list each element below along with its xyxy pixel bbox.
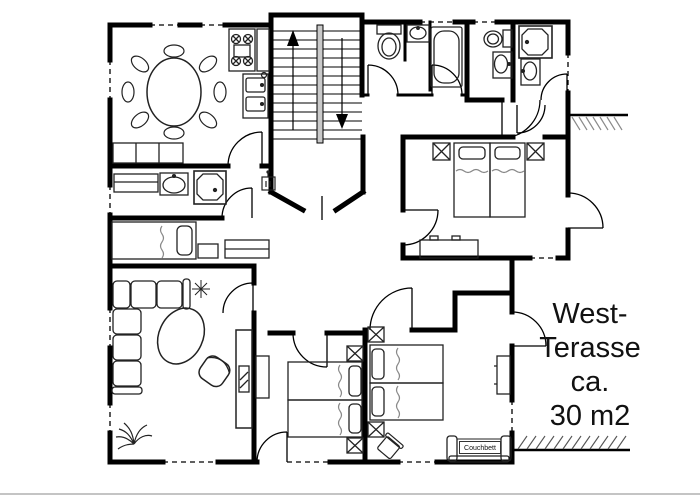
toilet-icon xyxy=(484,30,512,47)
coffee-table-icon xyxy=(149,300,213,371)
right-bedroom xyxy=(420,143,544,258)
nightstand-icon xyxy=(433,143,450,160)
left-bathroom xyxy=(114,171,226,204)
sideboard-icon xyxy=(113,143,183,163)
bottom-middle-bedroom xyxy=(288,346,363,453)
living-room xyxy=(112,279,269,449)
dining-chairs xyxy=(122,45,226,139)
couch-bed-label: Couchbett xyxy=(459,441,501,454)
shower-icon xyxy=(519,26,552,58)
nightstand-icon xyxy=(368,422,384,437)
bed-icon xyxy=(370,345,443,383)
master-bathroom xyxy=(484,26,552,85)
door-swing xyxy=(541,74,567,100)
terrace-label-line3: ca. xyxy=(510,365,670,399)
wc-room xyxy=(377,25,429,59)
kitchen-cabinet xyxy=(257,29,269,71)
window-markers xyxy=(110,22,568,462)
bed-icon xyxy=(112,222,196,259)
bed-icon xyxy=(288,362,362,400)
bed-icon xyxy=(370,383,443,420)
terrace-hatch-top xyxy=(568,115,628,130)
exterior-walls xyxy=(110,22,568,462)
door-swing xyxy=(223,283,253,313)
stove-icon xyxy=(229,29,255,71)
stairs-down-arrow xyxy=(336,38,348,129)
kitchen xyxy=(229,29,269,118)
stair-core xyxy=(317,25,323,143)
bed-icon xyxy=(288,400,362,437)
door-swing xyxy=(568,193,603,228)
left-bedroom xyxy=(112,222,269,259)
dresser-icon xyxy=(420,236,478,258)
fireplace-unit xyxy=(236,330,252,428)
door-swing xyxy=(517,105,545,133)
bathroom-partitions xyxy=(467,22,513,100)
shower-icon xyxy=(194,171,226,204)
dining-room xyxy=(113,45,226,163)
interior-walls xyxy=(110,15,568,462)
nightstand-icon xyxy=(347,346,363,361)
cabinet xyxy=(256,356,269,398)
wc-partitions xyxy=(363,22,467,95)
stairs-up-arrow xyxy=(287,30,299,130)
nightstand-icon xyxy=(527,143,544,160)
sofa-icon xyxy=(112,279,190,394)
nightstand-icon xyxy=(368,327,384,342)
bed-icon xyxy=(454,143,490,217)
terrace-hatch-bottom xyxy=(513,436,630,450)
washbasin-icon xyxy=(160,173,188,195)
washbasin-icon xyxy=(521,59,540,85)
door-swing xyxy=(370,288,412,330)
hall-funnel-walls xyxy=(271,192,363,210)
desk xyxy=(225,240,269,258)
washbasin-icon xyxy=(407,25,429,42)
nightstand-icon xyxy=(347,438,363,453)
bath-counter xyxy=(114,174,158,192)
wall-sideboard-icon xyxy=(494,356,510,394)
bathtub-room xyxy=(431,27,462,87)
nightstand-icon xyxy=(198,244,218,258)
terrace-label: West- Terasse ca. 30 m2 xyxy=(510,297,670,433)
washbasin-icon xyxy=(493,52,512,78)
door-swing xyxy=(368,65,398,95)
door-swing xyxy=(228,132,262,166)
dining-table-icon xyxy=(147,58,201,126)
terrace-label-line1: West- xyxy=(510,297,670,331)
kitchen-sink-icon xyxy=(243,73,268,119)
armchair-icon xyxy=(196,353,233,390)
plant-icon xyxy=(192,280,210,298)
staircase xyxy=(271,25,362,143)
bed-icon xyxy=(490,143,525,217)
door-swing xyxy=(257,432,287,462)
terrace-label-line2: Terasse xyxy=(510,331,670,365)
palm-plant-icon xyxy=(116,423,152,449)
floor-plan-page: West- Terasse ca. 30 m2 Couchbett xyxy=(0,0,700,500)
terrace-label-line4: 30 m2 xyxy=(510,399,670,433)
